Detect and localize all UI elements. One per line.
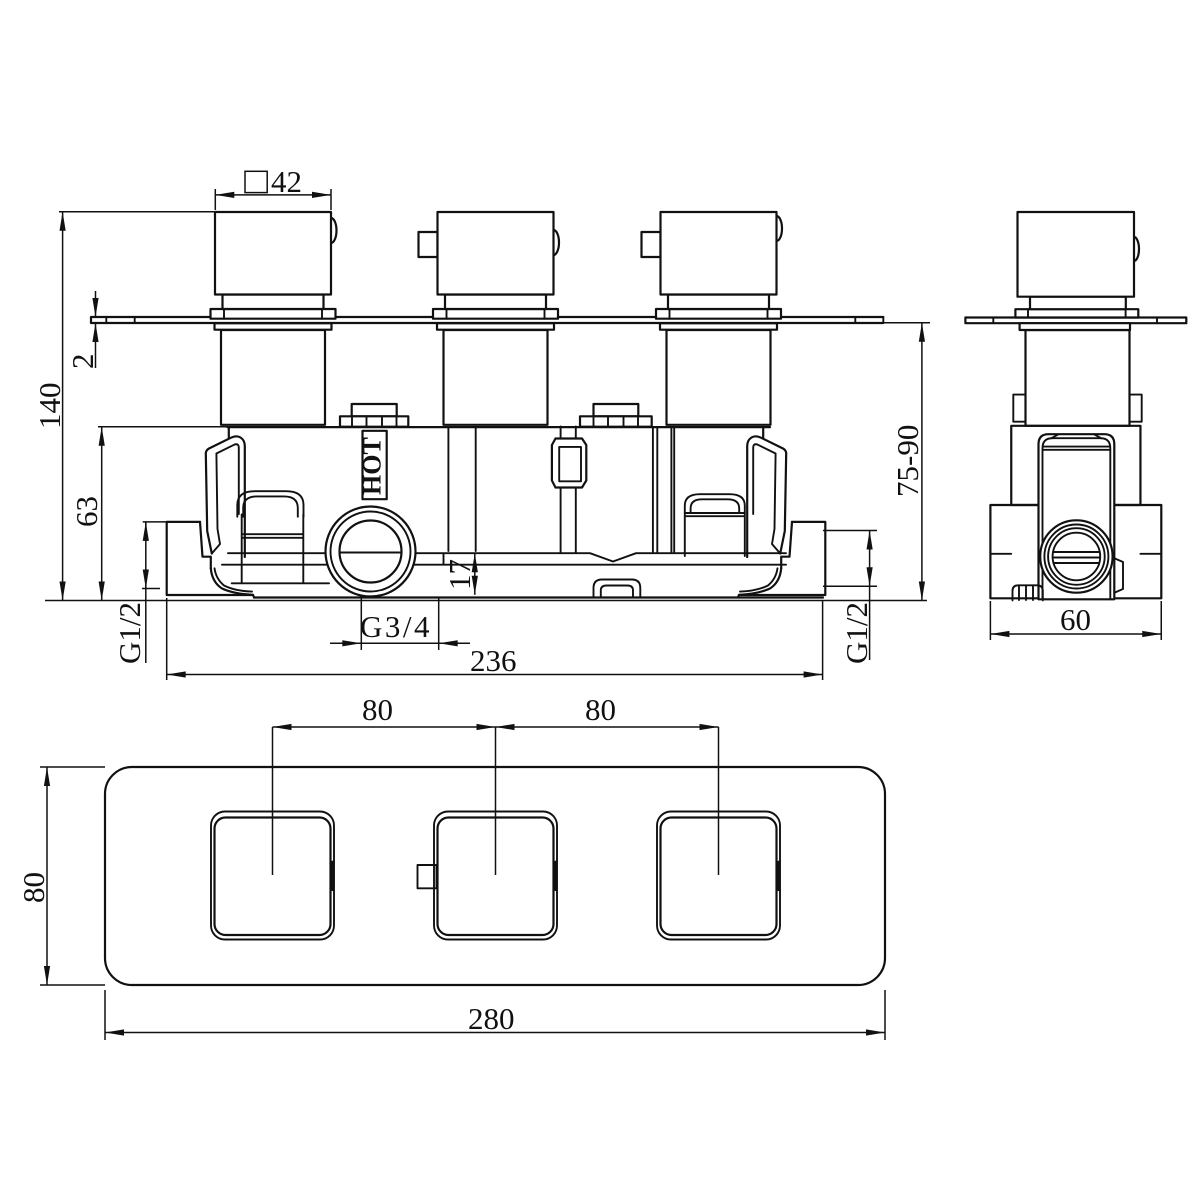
svg-text:80: 80 — [16, 872, 51, 903]
svg-text:63: 63 — [69, 496, 104, 527]
svg-text:G3/4: G3/4 — [360, 609, 432, 644]
svg-text:HOT: HOT — [358, 437, 387, 495]
svg-text:140: 140 — [32, 383, 67, 430]
svg-text:60: 60 — [1060, 602, 1091, 637]
svg-text:42: 42 — [271, 164, 302, 199]
svg-text:17: 17 — [442, 559, 477, 590]
svg-text:2: 2 — [65, 354, 100, 370]
svg-text:G1/2: G1/2 — [112, 602, 147, 664]
svg-text:G1/2: G1/2 — [839, 602, 874, 664]
svg-text:80: 80 — [585, 692, 616, 727]
svg-text:236: 236 — [470, 643, 517, 678]
svg-text:80: 80 — [362, 692, 393, 727]
svg-text:75-90: 75-90 — [890, 425, 925, 497]
svg-text:280: 280 — [468, 1001, 515, 1036]
